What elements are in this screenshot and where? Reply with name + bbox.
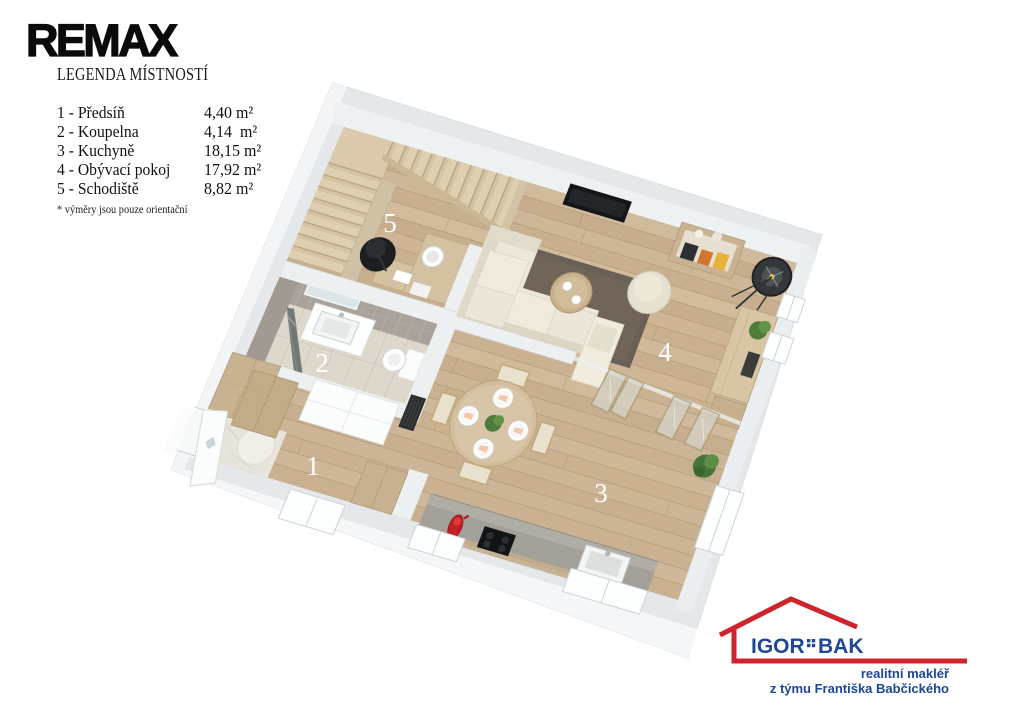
svg-text:BAK: BAK bbox=[818, 635, 864, 658]
svg-text:1: 1 bbox=[306, 451, 320, 481]
svg-text:z týmu Františka Babčického: z týmu Františka Babčického bbox=[770, 681, 949, 696]
svg-text:realitní makléř: realitní makléř bbox=[861, 666, 950, 681]
svg-text:IGOR: IGOR bbox=[751, 635, 805, 658]
svg-text:2: 2 bbox=[315, 348, 329, 378]
svg-text:4: 4 bbox=[658, 337, 672, 367]
svg-text:3: 3 bbox=[594, 478, 608, 508]
svg-text:5: 5 bbox=[383, 208, 397, 238]
